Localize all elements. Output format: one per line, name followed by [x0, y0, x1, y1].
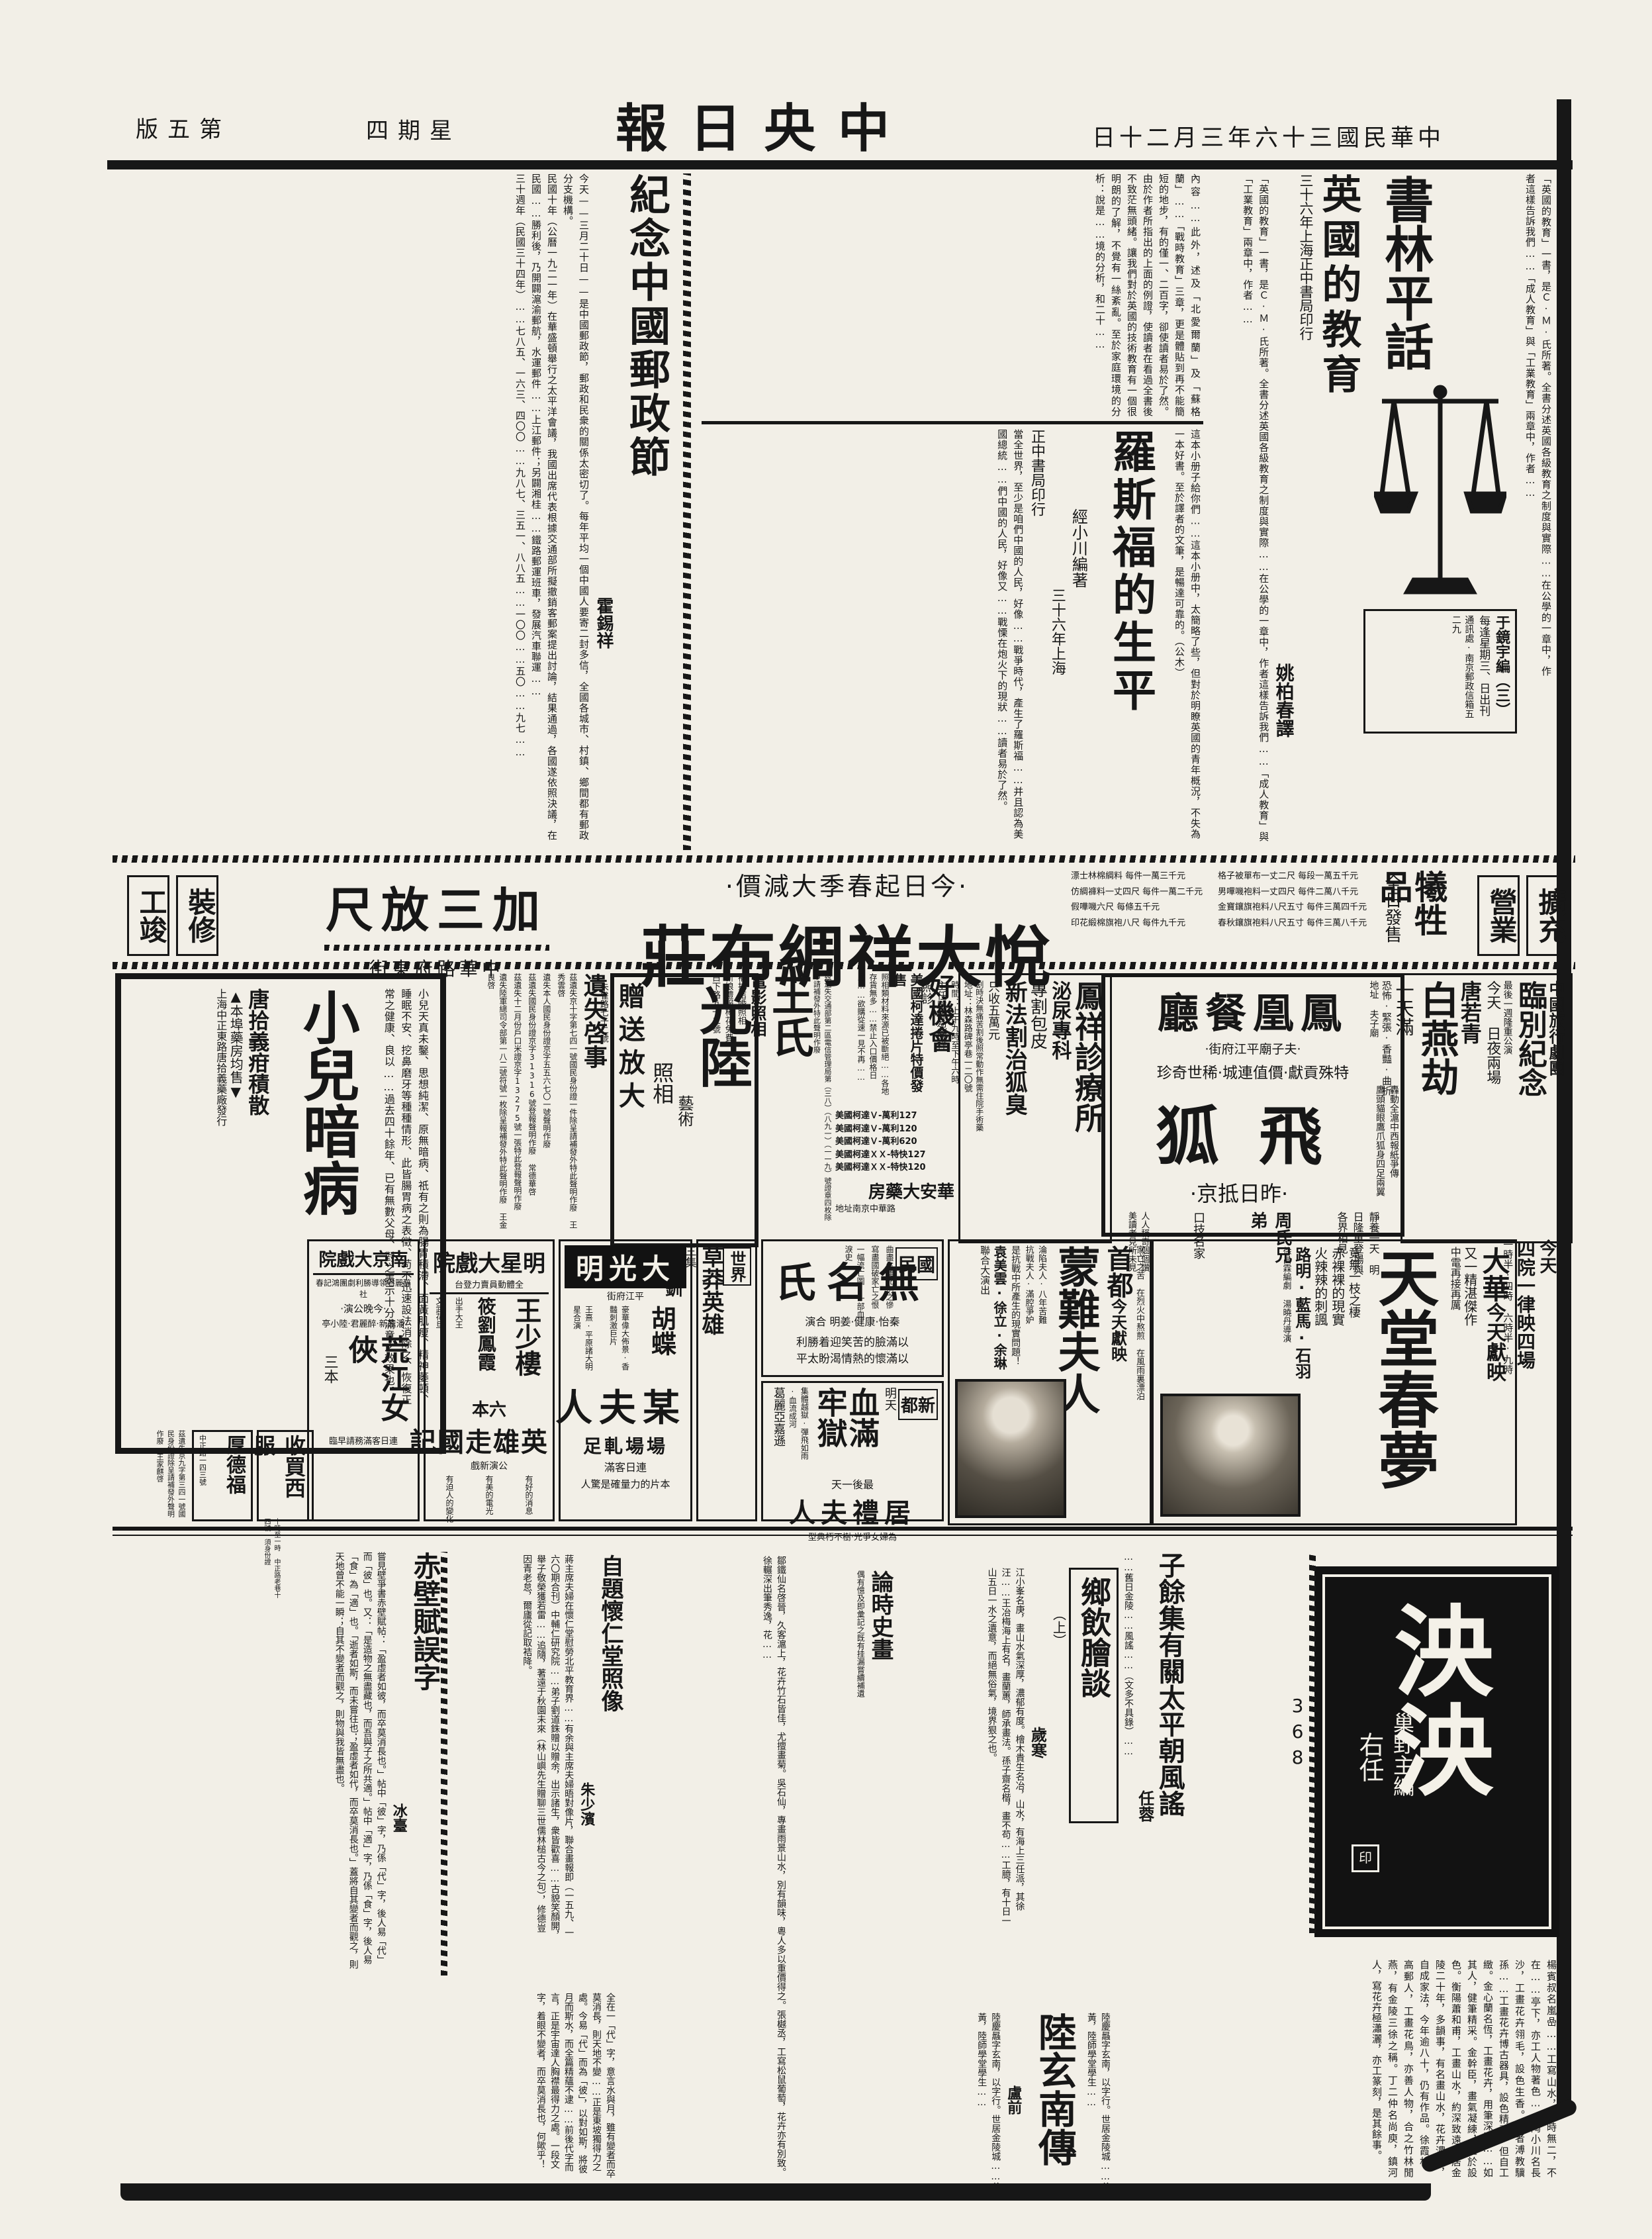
section-rule — [702, 421, 1203, 424]
shoudu-theatre-ad: 家亡之苦 在烈火中熬煎 在風雨裏漂泊 首都今天獻映 蒙難夫人 淪陷夫人·八年苦難… — [948, 1239, 1152, 1525]
xindu-film-title: 血滿牢獄 — [814, 1387, 878, 1470]
banner-box-done: 工竣 — [127, 875, 169, 956]
dgm-full: 場場軋足 — [565, 1432, 686, 1458]
xindu-name: 新都 — [898, 1389, 938, 1420]
mingxing-star1: 王少樓 — [506, 1297, 545, 1393]
roosevelt-pub2: 正中書局印行 — [1026, 429, 1046, 628]
mingxing-star2: 筱劉鳳霞 — [473, 1297, 499, 1393]
uk-education-article: 英國的教育 三十六年上海正中書局印行 姚柏春譯 「英國的教育」一書，是Ｃ·Ｍ·氏… — [1206, 173, 1361, 850]
postal-day-article: 紀念中國郵政節 霍錫祥 今天——三月二十日——是中國郵政節，郵政和民衆的關係太密… — [113, 173, 678, 850]
shoudu-side-copy: 家亡之苦 在烈火中熬煎 在風雨裏漂泊 — [1133, 1245, 1146, 1519]
guomin-slogan2: 以滿懷的熱情渴盼太平 — [767, 1349, 938, 1366]
mingxing-film-title: 英雄走國記 — [430, 1421, 549, 1459]
ziti-article: 自題懷仁堂照像 朱少濱 蔣主席夫婦在懷仁堂慰勞北平教育界……有余與主席夫婦晤對像… — [455, 1554, 623, 1952]
mingxing-new: 公演新戲 — [430, 1459, 549, 1472]
price-item: 春秋鑲旗袍料八尺五寸 每件三萬八千元 — [1218, 917, 1370, 930]
child-ad-medicine: 唐拾義疳積散 — [244, 988, 271, 1405]
nanjing-theatre-ad: 南京大戲院 醉麗君領導勝利劇團鴻記春社 ·今晚公演· 潘鼎新·醉麗君·陸小亭 荒… — [307, 1239, 420, 1521]
ziti-body: 蔣主席夫婦在懷仁堂慰勞北平教育界……有余與主席夫婦晤對像片，聯合畫報即（一五九、… — [520, 1554, 575, 1941]
banner-price-list-a: 格子被單布一丈二尺 每段一萬五千元 男嗶嘰袍料一丈四尺 每件二萬八千元 金寶鑲旗… — [1218, 870, 1370, 929]
price-item: 男嗶嘰袍料一丈四尺 每件二萬八千元 — [1218, 886, 1370, 899]
lost-notice-extra: 茲遺失京九字第三四一號國民身份證除呈請補發外聲明作廢 王家麒啓 — [116, 1430, 187, 1521]
lost-notice-3: 茲遺失國民身份證京字31316號登報聲明作廢 常德華啓 — [526, 973, 538, 1229]
xindu-praise: 為婦女爭光·樹不朽典型 — [767, 1530, 938, 1543]
supplement-rule-2 — [113, 1535, 1573, 1536]
nanjing-cast: 潘鼎新·醉麗君·陸小亭 — [313, 1317, 414, 1329]
guomin-film-title: 無名氏 — [767, 1249, 938, 1309]
booktalk-schedule: 每逢星期三、日出刊 — [1475, 615, 1491, 718]
lu-body-right: 陸慶曧字玄南，以字行。世居金陵城……父秋黃，陸師學堂學生…… — [1084, 2013, 1112, 2205]
bottom-page-border — [120, 2183, 1431, 2201]
houdefu-name: 厚德福 — [219, 1435, 248, 1518]
kodak-title: 好機會 — [924, 973, 954, 1099]
guomin-slogan1: 以滿臉的苦笑迎着勝利 — [767, 1333, 938, 1349]
guomin-cast: 秦怡·康健·姜明 合演 — [767, 1313, 938, 1329]
price-item: 金寶鑲旗袍料八尺五寸 每件三萬四千元 — [1218, 901, 1370, 914]
chibi-headline: 赤壁賦誤字 — [409, 1552, 441, 1969]
banner-deal-text: 加三放尺 — [298, 871, 576, 941]
phoenix-name: 鳳凰餐廳 — [1105, 980, 1400, 1039]
fox-act-title: 飛狐 — [1105, 1085, 1373, 1177]
clinic-address: 地址：林森路碑亭巷一二〇號 — [960, 980, 974, 1225]
kodak-item: 美國柯達ＸＸ-特快127 — [835, 1149, 954, 1162]
lost-title: 遺失啓事 — [579, 973, 608, 1229]
troupe-title: 臨別紀念 — [1514, 980, 1545, 1225]
troupe-note: 最後一週隆重公演 — [1501, 980, 1513, 1225]
dahua-tag2: 中電再接再厲 — [1448, 1247, 1461, 1518]
dgm-address: 平江府街 — [565, 1290, 686, 1303]
kodak-ad: 好機會 美國柯達捲片特價發售 照相類材料來源已被斷絕……各地存貨無多……禁止入口… — [835, 973, 954, 1229]
date-line: 中華民國三十六年三月二十日 — [1092, 119, 1445, 153]
lost-notice-2: 遺失本人國民身份證京字五五六七〇一號聲明作廢 — [541, 973, 553, 1229]
uk-education-byline: 姚柏春譯 — [1271, 663, 1295, 835]
mingxing-role2: 文武花旦 — [434, 1297, 445, 1393]
dahua-name-now: 大華今天獻映 — [1478, 1247, 1510, 1518]
ziyu-body: ……舊日金陵……風謠……（文多不具錄）…… — [1121, 1552, 1135, 1923]
booktalk-info-box: 于鏡宇編（三） 每逢星期三、日出刊 通訊處·南京郵政信箱五二九 — [1363, 609, 1517, 734]
shoudu-name: 首都今天獻映 — [1103, 1245, 1133, 1519]
banner-promo: ·今日起春季大減價· — [635, 866, 1059, 902]
xindu-star: 葛麗亞嘉遜 — [770, 1387, 787, 1466]
wang-name: 王氏 — [766, 973, 811, 1225]
ziyu-divider — [1309, 1552, 1316, 1933]
four-theatres-schedule: 今天 四院一律映四場 一時半·四時 六時半·九時 — [1518, 1239, 1557, 1521]
banner-box-business: 營業 — [1477, 875, 1520, 956]
lunshi-headline: 論時史畫 — [866, 1570, 894, 1928]
xiangyin-part: （上） — [1050, 1607, 1069, 1965]
banner-price-list-b: 漂士林棉綢料 每件一萬三千元 仿綢褲料一丈四尺 每件一萬二千元 假嘩嘰六尺 每條… — [1071, 870, 1210, 929]
scales-icon — [1363, 381, 1517, 602]
kodak-item: 美國柯達Ｖ-萬利620 — [835, 1135, 954, 1149]
banner-box-expand: 擴充 — [1526, 875, 1569, 956]
daguangming-theatre-ad: 大光明 平江府街 胡蝶 豪華偉大佈景·香豔刺激巨片 王熹·平原諸大明星合演 某夫… — [559, 1239, 692, 1521]
phoenix-hype2: 鷹頭貓眼鷹爪狐身四足兩翼 — [1375, 1085, 1385, 1196]
banner-top-border — [113, 855, 1575, 863]
phoenix-slogan: 特殊貢獻·價值連城·稀世奇珍 — [1105, 1060, 1400, 1082]
banner-box-decorate: 裝修 — [176, 875, 218, 956]
dahua-tag: 又一精湛傑作 — [1461, 1247, 1478, 1518]
mingxing-theatre-ad: 明星大戲院 全體動員賣力登台 王少樓 筱劉鳳霞 出手大王 文武花旦 六本 英雄走… — [424, 1239, 555, 1521]
xindu-theatre-ad: 新都 明天 血滿牢獄 集體越獄·彈飛如雨·血流成河 葛麗亞嘉遜 最後一天 居禮夫… — [761, 1381, 944, 1521]
chibi-byline: 冰臺 — [388, 1803, 409, 1949]
china-travel-troupe-ad: 中國旅行劇團 臨別紀念 最後一週隆重公演 今天 日夜兩場 唐若青 白燕劫 一天滿… — [1400, 973, 1573, 1243]
xiangyin-byline: 歲寒 — [1027, 1727, 1050, 1925]
lunshi-article: 論時史畫 偶有憶及即彙記之既有挂漏嘗續補遺 — [798, 1570, 894, 1938]
postal-stats: 三十週年（民國三十四年）……七八五、一六三、四〇〇……九八七、三五一、八八五……… — [512, 173, 528, 841]
uk-education-body-start: 「英國的教育」一書，是Ｃ·Ｍ·氏所著。全書分述英國各級教育之制度與實際……在公學… — [1240, 173, 1271, 842]
xindu-tags: 集體越獄·彈飛如雨·血流成河 — [790, 1387, 810, 1466]
dgm-film-title: 某夫人 — [565, 1378, 686, 1432]
clinic-cut: 專割包皮 — [1027, 980, 1047, 1225]
dgm-cast: 王熹·平原諸大明星合演 — [571, 1306, 595, 1375]
masthead-title: 中央日報 — [616, 87, 912, 162]
kodak-item: 美國柯達Ｖ-萬利120 — [835, 1123, 954, 1136]
guanglu-studio-ad: 光陸 藝術 照相 贈送放大 朱雀路七十二號 — [610, 973, 758, 1247]
booktalk-block: 書林平話 于鏡宇編（三） 每逢星期三、日出刊 通訊處·南京郵政信箱五 — [1363, 173, 1517, 850]
roosevelt-body: 當全世界，至少是咱們中國的人民，好像……戰爭時代，產生了羅斯福……并且認為美國總… — [994, 429, 1026, 839]
xiangyin-body-continued: 鄒鐵仙名啓晉，久客滬上，花卉竹石皆佳，尤擅畫菊。吳石仙，專畫雨景山水，別有韻味，… — [635, 1556, 788, 2178]
uk-education-publisher: 三十六年上海正中書局印行 — [1296, 173, 1315, 518]
chibi-article: 赤壁賦誤字 冰臺 嘗見壁爭書赤壁賦帖：「盈虛者如彼，而卒莫消長也。」帖中「彼」字… — [154, 1552, 441, 1981]
ziti-headline: 自題懷仁堂照像 — [596, 1554, 623, 1941]
dgm-hype: 豪華偉大佈景·香豔刺激巨片 — [608, 1306, 631, 1375]
supplement-editor: 巢野主編 — [1387, 1712, 1418, 1911]
vertical-divider — [683, 173, 691, 850]
troupe-star: 唐若青 — [1457, 980, 1482, 1225]
ziti-divider — [441, 1552, 447, 1976]
shijie-film: 草莽英雄 — [698, 1245, 723, 1517]
child-ad-maker: 上海中正東路唐拾義藥廠發行 — [213, 988, 227, 1405]
postal-headline: 紀念中國郵政節 — [623, 173, 668, 518]
edition-label: 第五版 — [136, 111, 231, 144]
dahua-cast: 路明·藍馬·石羽 — [1291, 1247, 1312, 1409]
xiangyin-article: 鄉飲膾談 （上） 歲寒 江小峯名庚，畫山水氣深厚，濃郁有度。檜木貴生名冶，山水，… — [895, 1568, 1119, 1938]
price-item: 格子被單布一丈二尺 每段一萬五千元 — [1218, 870, 1370, 883]
clinic-name: 鳳祥診療所 — [1071, 980, 1105, 1225]
booktalk-address: 通訊處·南京郵政信箱五二九 — [1449, 615, 1475, 718]
newspaper-page: 第五版 星期四 中央日報 中華民國三十六年三月二十日 「英國的教育」一書，是Ｃ·… — [0, 0, 1652, 2239]
phoenix-hype1: 轟動全滬中西報紙爭傳 — [1389, 1085, 1399, 1178]
nanjing-part: 三本 — [319, 1355, 340, 1445]
chibi-body: 嘗見壁爭書赤壁賦帖：「盈虛者如彼，而卒莫消長也。」帖中「彼」字，乃係「代」字，後… — [332, 1552, 388, 1969]
uk-education-body: 內容……此外，述及「北愛爾蘭」及「蘇格蘭」……「戰時教育」三章，更是體貼到再不能… — [702, 173, 1203, 417]
dgm-star: 胡蝶 — [644, 1306, 680, 1375]
dahua-label1: 竟無一枝之棲 — [1346, 1247, 1361, 1409]
mingxing-bullet2: 有美的電光 — [483, 1475, 495, 1528]
shijie-theatre-ad: 世界 草莽英雄 三集 王寶釧 四集 — [696, 1239, 757, 1521]
schedule-today: 今天 — [1536, 1239, 1557, 1517]
postal-body: 民國十年（公曆一九二一年）在華盛頓舉行之太平洋會議，我國出席代表根據交通部所擬撤… — [528, 173, 560, 841]
mingxing-role1: 出手大王 — [453, 1297, 465, 1393]
dgm-power: 本片的力量確是驚人 — [565, 1477, 686, 1491]
xiangyin-headline-box: 鄉飲膾談 — [1069, 1568, 1119, 1823]
troupe-org: 中國旅行劇團 — [1545, 980, 1565, 1225]
xindu-tomorrow: 明天 — [881, 1387, 898, 1466]
lost-notice-4: 茲遺失十二月份戶口米證京字13275號一張特此登報聲明作廢 — [512, 973, 524, 1229]
fox-arrived: ·昨日抵京· — [1105, 1177, 1373, 1208]
troupe-play-title: 白燕劫 — [1415, 980, 1457, 1225]
roosevelt-pub1: 三十六年上海 — [1046, 588, 1067, 786]
lu-body: 陸慶曧字玄南，以字行。世居金陵城……父秋黃，陸師學堂學生…… — [974, 2013, 1002, 2205]
price-item: 假嘩嘰六尺 每條五千元 — [1071, 901, 1210, 914]
xiangyin-body: 江小峯名庚，畫山水氣深厚，濃郁有度。檜木貴生名冶，山水，有海上三任派，其徐汪……… — [985, 1568, 1027, 1925]
kodak-body: 照相類材料來源已被斷絕……各地存貨無多……禁止入口價格日昂……欲購從速一見不再…… — [855, 973, 891, 1099]
clinic-new-treatment: 新法割治狐臭 — [1001, 980, 1027, 1225]
nanjing-film-title: 荒江女俠 — [344, 1335, 408, 1425]
chibi-body-continued: 全在一「代」字，意言水與月，雖有變者而卒莫消長，則天地不變……正是東坡獨得力之處… — [154, 1993, 617, 2182]
yuedaxiang-banner-ad: 擴充 營業 犧牲品 全日發售 格子被單布一丈二尺 每段一萬五千元 男嗶嘰袍料一丈… — [113, 855, 1575, 969]
kodak-item: 美國柯達Ｖ-萬利127 — [835, 1110, 954, 1123]
postal-lead: 今天——三月二十日——是中國郵政節，郵政和民衆的關係太密切了。每年平均一個中國人… — [560, 173, 592, 841]
ziyu-byline: 任蓉 — [1135, 1790, 1154, 1923]
uk-education-lead-column: 「英國的教育」一書，是Ｃ·Ｍ·氏所著。全書分述英國各級教育之制度與實際……在公學… — [1520, 173, 1554, 677]
uk-education-headline: 英國的教育 — [1315, 173, 1361, 452]
guomin-theatre-ad: 國民 曲盡生離死別之慘 寫盡國破家亡之恨 一幅流亡圖·一部血淚史 無名氏 秦怡·… — [761, 1239, 944, 1377]
shijie-name: 世界 — [723, 1247, 751, 1286]
xindu-film2-title: 居禮夫人 — [767, 1492, 938, 1530]
price-item: 印花緞棉旗袍八尺 每件九千元 — [1071, 917, 1210, 930]
lost-notices-block: 遺失啓事 茲遺失京十字第七四一號國民身份證一件除呈請補發外特此聲明作廢 王秀雲啓… — [420, 973, 608, 1229]
postal-byline: 霍錫祥 — [592, 597, 614, 756]
kodak-subtitle: 美國柯達捲片特價發售 — [891, 973, 924, 1099]
kodak-store-address: 地址南京中華路 — [835, 1203, 954, 1216]
clinic-note: 割時決無痛苦割後照常動作無需住院手術藥 — [974, 980, 986, 1225]
buywest-name: 收買西服 — [248, 1435, 309, 1518]
lu-headline: 陸玄南傳 — [1032, 2013, 1075, 2205]
mingxing-bullet1: 有好的消息 — [523, 1475, 535, 1528]
header-rule — [107, 160, 1573, 169]
price-item: 漂士林棉綢料 每件一萬三千元 — [1071, 870, 1210, 883]
dahua-film-title: 天堂春夢 — [1371, 1247, 1435, 1518]
kodak-store: 華安大藥房 — [835, 1178, 954, 1203]
roosevelt-headline: 羅斯福的生平 — [1106, 429, 1154, 839]
dgm-name: 大光明 — [565, 1245, 686, 1288]
guanglu-name: 光陸 — [694, 982, 749, 1223]
wang-lost-notice: 茲遺失交通部第二區電信管理局第（三八）（八九一）（一一九）號證章四枚除申請補發外… — [811, 973, 833, 1225]
price-item: 仿綢褲料一丈四尺 每件一萬二千元 — [1071, 886, 1210, 899]
houdefu-ad: 厚德福 中正路一四三號 — [192, 1430, 253, 1521]
clinic-dept: 泌尿專科 — [1047, 980, 1071, 1225]
weekday-label: 星期四 — [366, 113, 461, 145]
fengxiang-clinic-ad: 鳳祥診療所 泌尿專科 專割包皮 新法割治狐臭 只收五萬元 割時決無痛苦割後照常動… — [958, 973, 1112, 1243]
dgm-note: 連日客滿 — [565, 1458, 686, 1474]
deal-underline — [324, 945, 549, 951]
luxuannan-article: 陸慶曧字玄南，以字行。世居金陵城……父秋黃，陸師學堂學生…… 陸玄南傳 盧前 陸… — [781, 2013, 1112, 2211]
lost-notice-1: 茲遺失京十字第七四一號國民身份證一件除呈請補發外特此聲明作廢 王秀雲啓 — [555, 973, 579, 1229]
ziyu-article: 子餘集有關太平朝風謠 任蓉 ……舊日金陵……風謠……（文多不具錄）…… — [1121, 1552, 1312, 1933]
nanjing-name: 南京大戲院 — [313, 1245, 414, 1275]
phoenix-hype: 轟動全滬中西報紙爭傳 鷹頭貓眼鷹爪狐身四足兩翼 — [1373, 1085, 1400, 1198]
roosevelt-article: 這本小册子給你們……這本小册中，太簡略了些，但對於明瞭英國的青年概況，不失為一本… — [702, 429, 1203, 849]
xindu-last-day: 最後一天 — [767, 1476, 938, 1492]
kodak-item: 美國柯達ＸＸ-特快120 — [835, 1161, 954, 1174]
dahua-label3: 火辣辣的刺諷 — [1312, 1247, 1329, 1409]
mingxing-note: 全體動員賣力登台 — [430, 1278, 549, 1294]
lost-notice-5: 遺失陸軍總司令部第一八二號符號一枚除呈報補發外特此聲明作廢 王金良啓 — [485, 973, 509, 1229]
supplement-masthead-box: 泱泱 巢野主編 右任 印 — [1314, 1566, 1559, 1937]
roosevelt-byline: 經小川編著 — [1067, 508, 1089, 786]
dahua-crew: 徐昌霖編劇 湯曉丹導演 — [1280, 1247, 1291, 1409]
supplement-rule-1 — [113, 1527, 1573, 1531]
mingxing-bullet3: 有迫人的變化 — [443, 1475, 455, 1528]
schedule-main: 四院一律映四場 — [1514, 1239, 1536, 1517]
clinic-price: 只收五萬元 — [986, 980, 1001, 1225]
phoenix-address: ·夫子廟平江府街· — [1105, 1039, 1400, 1057]
xiangyin-headline: 鄉飲膾談 — [1075, 1576, 1113, 1801]
film-still-photo — [955, 1379, 1066, 1518]
banner-deal: 加三放尺 中華路府東街 — [298, 871, 576, 981]
troupe-when: 今天 日夜兩場 — [1483, 980, 1502, 1225]
nanjing-troupe: 醉麗君領導勝利劇團鴻記春社 — [313, 1277, 414, 1300]
phoenix-restaurant-ad: 鳳凰餐廳 ·夫子廟平江府街· 特殊貢獻·價值連城·稀世奇珍 轟動全滬中西報紙爭傳… — [1101, 973, 1404, 1237]
ziyu-headline: 子餘集有關太平朝風謠 — [1154, 1552, 1185, 1923]
roosevelt-lead-column: 這本小册子給你們……這本小册中，太簡略了些，但對於明瞭英國的青年概況，不失為一本… — [1171, 429, 1203, 839]
houdefu-address: 中正路一四三號 — [197, 1435, 208, 1518]
film-still-photo — [1160, 1394, 1301, 1517]
child-ad-note: ▲本埠藥房均售▼ — [227, 988, 244, 1405]
booktalk-title: 書林平話 — [1371, 173, 1438, 372]
ziti-byline: 朱少濱 — [575, 1782, 596, 1941]
mingxing-vol: 六本 — [430, 1396, 549, 1421]
banner-sacrifice-sub: 全日發售 — [1381, 874, 1402, 960]
booktalk-editor: 于鏡宇編（三） — [1491, 615, 1511, 718]
dahua-label2: 赤裸裸的現實 — [1329, 1247, 1346, 1409]
mingxing-name: 明星大戲院 — [430, 1245, 549, 1278]
buy-western-suits-ad: 收買西服 十時至一時 中正路老巷十四號 須身份證 — [257, 1430, 314, 1521]
calligrapher-seal: 印 — [1352, 1844, 1379, 1872]
dahua-theatre-ad: 大華今天獻映 又一精湛傑作 中電再接再厲 天堂春夢 竟無一枝之棲 赤裸裸的現實 … — [1152, 1239, 1517, 1525]
nanjing-tonight: ·今晚公演· — [313, 1302, 414, 1315]
lunshi-note: 偶有憶及即彙記之既有挂漏嘗續補遺 — [854, 1570, 866, 1928]
guanglu-gift: 贈送放大 — [610, 982, 649, 1223]
